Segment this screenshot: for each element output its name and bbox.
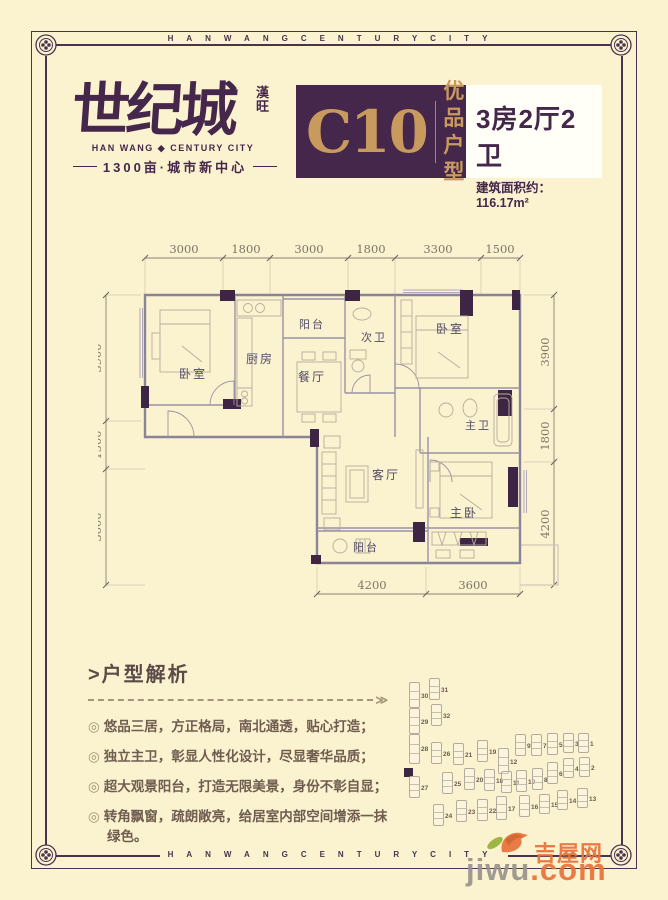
site-building: 8 bbox=[532, 768, 543, 790]
site-building-number: 14 bbox=[569, 798, 576, 805]
room-label-bedroom-right: 卧室 bbox=[436, 321, 464, 336]
analysis-section: >户型解析 ≫ ◎悠品三居，方正格局，南北通透，贴心打造； ◎独立主卫，彰显人性… bbox=[88, 658, 388, 857]
site-building: 24 bbox=[433, 804, 444, 826]
watermark-site-latin: jiwu.com bbox=[466, 852, 607, 888]
tagline-text: 1300亩·城市新中心 bbox=[103, 157, 247, 176]
dim-left-2: 1500 bbox=[98, 430, 104, 459]
dim-top-1: 3000 bbox=[169, 242, 198, 256]
site-building: 4 bbox=[563, 758, 574, 778]
site-building-number: 12 bbox=[510, 759, 517, 766]
floor-plan-svg: 3000 1800 3000 1800 3300 1500 3900 1500 … bbox=[98, 238, 562, 610]
site-building-number: 30 bbox=[421, 693, 428, 700]
unit-spec-box: 3房2厅2卫 建筑面积约：116.17m² bbox=[466, 85, 602, 178]
bullet-icon: ◎ bbox=[88, 749, 100, 764]
site-building-number: 31 bbox=[441, 687, 448, 694]
dim-top-4: 1800 bbox=[356, 242, 385, 256]
room-label-dining: 餐厅 bbox=[298, 369, 326, 384]
bullet-icon: ◎ bbox=[88, 779, 100, 794]
site-building: 18 bbox=[484, 769, 495, 791]
logo-subtitle-en: HAN WANG ◆ CENTURY CITY bbox=[78, 143, 268, 154]
site-building: 29 bbox=[409, 708, 420, 734]
room-label-living: 客厅 bbox=[372, 467, 400, 482]
unit-tag-line1: 优品 bbox=[443, 78, 466, 132]
dim-right-3: 4200 bbox=[538, 509, 552, 538]
site-building-number: 28 bbox=[421, 746, 428, 753]
site-building: 23 bbox=[456, 800, 467, 822]
site-building-number: 20 bbox=[476, 777, 483, 784]
floor-plan: 3000 1800 3000 1800 3300 1500 3900 1500 … bbox=[98, 238, 562, 615]
dim-left-3: 3600 bbox=[98, 512, 104, 541]
analysis-item: ◎独立主卫，彰显人性化设计，尽显奢华品质； bbox=[88, 747, 388, 767]
room-label-balcony-bottom: 阳台 bbox=[353, 540, 379, 554]
site-building: 31 bbox=[429, 678, 440, 700]
watermark-tld: .com bbox=[530, 852, 606, 887]
site-building: 26 bbox=[431, 742, 442, 764]
frame-banner-top: HANWANGCENTURYCITY bbox=[0, 34, 668, 43]
site-building: 9 bbox=[515, 734, 526, 756]
dim-top-6: 1500 bbox=[485, 242, 514, 256]
site-building: 10 bbox=[516, 770, 527, 792]
analysis-item: ◎悠品三居，方正格局，南北通透，贴心打造； bbox=[88, 717, 388, 737]
site-building: 27 bbox=[409, 776, 420, 798]
windows bbox=[140, 290, 527, 513]
site-building-number: 16 bbox=[531, 804, 538, 811]
neighbor-outline bbox=[520, 545, 558, 585]
unit-code: C10 bbox=[296, 98, 433, 166]
unit-divider bbox=[435, 101, 436, 163]
tagline-dash-right bbox=[253, 166, 277, 167]
tagline-dash-left bbox=[73, 166, 97, 167]
site-building: 19 bbox=[477, 740, 488, 762]
analysis-heading: >户型解析 bbox=[88, 658, 388, 687]
site-map: 3031293228262119129753127252018111086422… bbox=[395, 660, 625, 850]
analysis-item: ◎超大观景阳台，打造无限美景，身份不彰自显； bbox=[88, 777, 388, 797]
dim-top-5: 3300 bbox=[423, 242, 452, 256]
dim-bottom-1: 4200 bbox=[357, 578, 386, 592]
site-building: 16 bbox=[519, 795, 530, 817]
site-building: 15 bbox=[539, 794, 550, 814]
room-label-kitchen: 厨房 bbox=[246, 351, 274, 366]
site-building: 7 bbox=[531, 734, 542, 756]
logo-seal-bottom: 旺 bbox=[256, 100, 269, 114]
site-building: 3 bbox=[563, 733, 574, 753]
dim-top-2: 1800 bbox=[231, 242, 260, 256]
room-label-bedroom-master: 主卧 bbox=[450, 506, 478, 520]
logo-seal-top: 漢 bbox=[256, 86, 269, 100]
unit-code-box: C10 优品 户型 bbox=[296, 85, 466, 178]
site-building: 5 bbox=[547, 733, 558, 755]
site-building: 14 bbox=[557, 790, 568, 810]
site-building-number: 24 bbox=[445, 813, 452, 820]
site-building-number: 19 bbox=[489, 749, 496, 756]
site-building-number: 2 bbox=[591, 765, 595, 772]
bullet-icon: ◎ bbox=[88, 809, 100, 824]
watermark-name: jiwu bbox=[466, 852, 530, 887]
site-building-number: 17 bbox=[508, 806, 515, 813]
site-building-number: 1 bbox=[590, 741, 594, 748]
site-building: 20 bbox=[464, 768, 475, 790]
site-building: 13 bbox=[577, 788, 588, 808]
site-building-number: 27 bbox=[421, 785, 428, 792]
site-building: 1 bbox=[578, 733, 589, 753]
unit-spec-title: 3房2厅2卫 bbox=[476, 99, 602, 173]
analysis-item-text: 独立主卫，彰显人性化设计，尽显奢华品质； bbox=[104, 749, 374, 764]
site-building-number: 29 bbox=[421, 719, 428, 726]
unit-tag: 优品 户型 bbox=[443, 78, 466, 186]
project-logo: 世纪城 bbox=[70, 78, 264, 142]
site-building-number: 13 bbox=[589, 796, 596, 803]
analysis-item: ◎转角飘窗，疏朗敞亮，给居室内部空间增添一抹绿色。 bbox=[88, 807, 388, 847]
site-building: 22 bbox=[477, 799, 488, 821]
site-building: 17 bbox=[496, 796, 507, 820]
room-label-bedroom-left: 卧室 bbox=[179, 366, 207, 381]
site-building: 21 bbox=[453, 743, 464, 765]
dim-left-1: 3900 bbox=[98, 343, 104, 372]
dim-right-1: 3900 bbox=[538, 337, 552, 366]
analysis-list: ◎悠品三居，方正格局，南北通透，贴心打造； ◎独立主卫，彰显人性化设计，尽显奢华… bbox=[88, 717, 388, 847]
site-building-number: 21 bbox=[465, 752, 472, 759]
unit-tag-line2: 户型 bbox=[443, 132, 466, 186]
divider-dashes bbox=[88, 699, 373, 701]
dim-right-2: 1800 bbox=[538, 421, 552, 450]
analysis-item-text: 超大观景阳台，打造无限美景，身份不彰自显； bbox=[104, 779, 388, 794]
room-label-bath-master: 主卫 bbox=[465, 419, 491, 432]
unit-spec-area: 建筑面积约：116.17m² bbox=[476, 177, 602, 210]
site-building: 6 bbox=[547, 762, 558, 784]
site-building-number: 32 bbox=[443, 713, 450, 720]
site-building: 30 bbox=[409, 682, 420, 708]
site-building: 11 bbox=[501, 771, 512, 793]
site-building: 28 bbox=[409, 734, 420, 764]
site-building: 32 bbox=[431, 704, 442, 726]
site-building: 2 bbox=[579, 757, 590, 777]
logo-seal: 漢 旺 bbox=[256, 86, 269, 114]
room-label-bath-second: 次卫 bbox=[361, 330, 387, 344]
bullet-icon: ◎ bbox=[88, 719, 100, 734]
floorplan-poster: { "frame": { "top_text": "HANWANGCENTURY… bbox=[0, 0, 668, 900]
logo-tagline: 1300亩·城市新中心 bbox=[66, 157, 284, 176]
site-building-number: 25 bbox=[454, 781, 461, 788]
analysis-divider: ≫ bbox=[88, 693, 388, 707]
site-building: 25 bbox=[442, 772, 453, 794]
analysis-item-text: 悠品三居，方正格局，南北通透，贴心打造； bbox=[104, 719, 374, 734]
site-building-number: 26 bbox=[443, 751, 450, 758]
divider-arrow-icon: ≫ bbox=[375, 693, 388, 707]
frame-line-top bbox=[56, 44, 612, 46]
watermark: 吉屋网 jiwu.com bbox=[458, 824, 638, 888]
dim-bottom-2: 3600 bbox=[458, 578, 487, 592]
site-building-number: 23 bbox=[468, 809, 475, 816]
room-label-balcony-top: 阳台 bbox=[299, 317, 325, 331]
dim-top-3: 3000 bbox=[294, 242, 323, 256]
analysis-item-text: 转角飘窗，疏朗敞亮，给居室内部空间增添一抹绿色。 bbox=[104, 809, 388, 844]
frame-line-left bbox=[45, 56, 47, 846]
